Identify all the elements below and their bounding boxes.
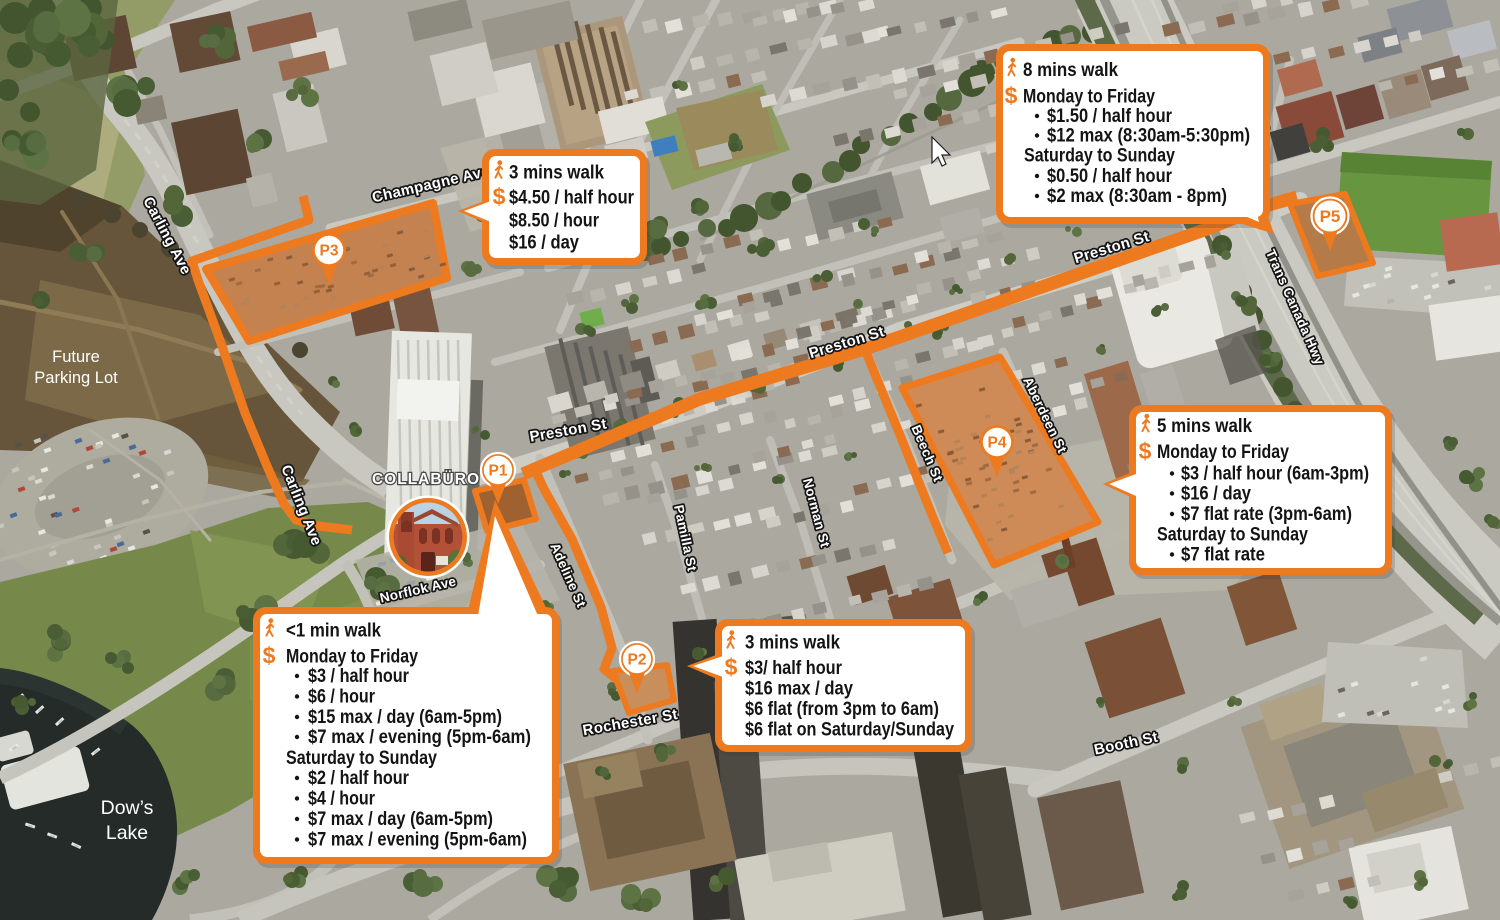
svg-text:$16 / day: $16 / day: [509, 232, 579, 254]
svg-text:Dow’s: Dow’s: [101, 797, 154, 819]
svg-text:$: $: [1139, 438, 1152, 464]
svg-text:<1 min walk: <1 min walk: [286, 620, 381, 642]
svg-text:3 mins walk: 3 mins walk: [509, 162, 604, 184]
svg-text:Parking Lot: Parking Lot: [34, 369, 118, 387]
svg-text:$7 max / evening (5pm-6am): $7 max / evening (5pm-6am): [308, 726, 531, 748]
svg-text:$3 / half hour (6am-3pm): $3 / half hour (6am-3pm): [1181, 463, 1369, 485]
svg-text:$12 max (8:30am-5:30pm): $12 max (8:30am-5:30pm): [1047, 125, 1250, 147]
svg-text:8 mins walk: 8 mins walk: [1023, 59, 1118, 81]
svg-text:Monday to Friday: Monday to Friday: [1157, 441, 1289, 463]
svg-text:$16 / day: $16 / day: [1181, 483, 1251, 505]
svg-text:$: $: [493, 184, 506, 210]
svg-text:$3/ half hour: $3/ half hour: [745, 657, 842, 679]
svg-text:$6 flat (from 3pm to 6am): $6 flat (from 3pm to 6am): [745, 698, 939, 720]
svg-text:$15 max / day (6am-5pm): $15 max / day (6am-5pm): [308, 706, 502, 728]
svg-text:$: $: [725, 654, 738, 680]
svg-text:$6 / hour: $6 / hour: [308, 686, 375, 708]
svg-text:$4.50 / half hour: $4.50 / half hour: [509, 187, 634, 209]
svg-text:P3: P3: [320, 243, 339, 260]
svg-text:$7 flat rate (3pm-6am): $7 flat rate (3pm-6am): [1181, 503, 1352, 525]
svg-text:$2 / half hour: $2 / half hour: [308, 767, 409, 789]
svg-text:Saturday to Sunday: Saturday to Sunday: [1157, 524, 1308, 546]
svg-text:P2: P2: [628, 652, 647, 669]
svg-text:$0.50 / half hour: $0.50 / half hour: [1047, 165, 1172, 187]
svg-text:$2 max (8:30am - 8pm): $2 max (8:30am - 8pm): [1047, 185, 1227, 207]
svg-text:COLLABÜRO: COLLABÜRO: [372, 471, 480, 488]
svg-text:$4 / hour: $4 / hour: [308, 788, 375, 810]
svg-text:3 mins walk: 3 mins walk: [745, 632, 840, 654]
svg-text:Saturday to Sunday: Saturday to Sunday: [286, 747, 437, 769]
svg-text:Lake: Lake: [106, 822, 148, 844]
svg-text:P4: P4: [988, 435, 1007, 452]
svg-text:$7 max / evening (5pm-6am): $7 max / evening (5pm-6am): [308, 829, 527, 851]
svg-text:P1: P1: [489, 463, 508, 480]
svg-text:$: $: [1005, 83, 1018, 109]
svg-text:$8.50 / hour: $8.50 / hour: [509, 210, 599, 232]
svg-text:P5: P5: [1320, 207, 1341, 226]
svg-text:Future: Future: [52, 348, 100, 366]
svg-text:$7 max / day (6am-5pm): $7 max / day (6am-5pm): [308, 808, 493, 830]
svg-text:Saturday to Sunday: Saturday to Sunday: [1024, 145, 1175, 167]
svg-text:$7 flat rate: $7 flat rate: [1181, 544, 1265, 566]
svg-text:$16 max / day: $16 max / day: [745, 678, 853, 700]
svg-text:$3 / half hour: $3 / half hour: [308, 665, 409, 687]
svg-text:5 mins walk: 5 mins walk: [1157, 415, 1252, 437]
svg-text:$6 flat on Saturday/Sunday: $6 flat on Saturday/Sunday: [745, 719, 954, 741]
svg-text:$: $: [263, 643, 276, 669]
